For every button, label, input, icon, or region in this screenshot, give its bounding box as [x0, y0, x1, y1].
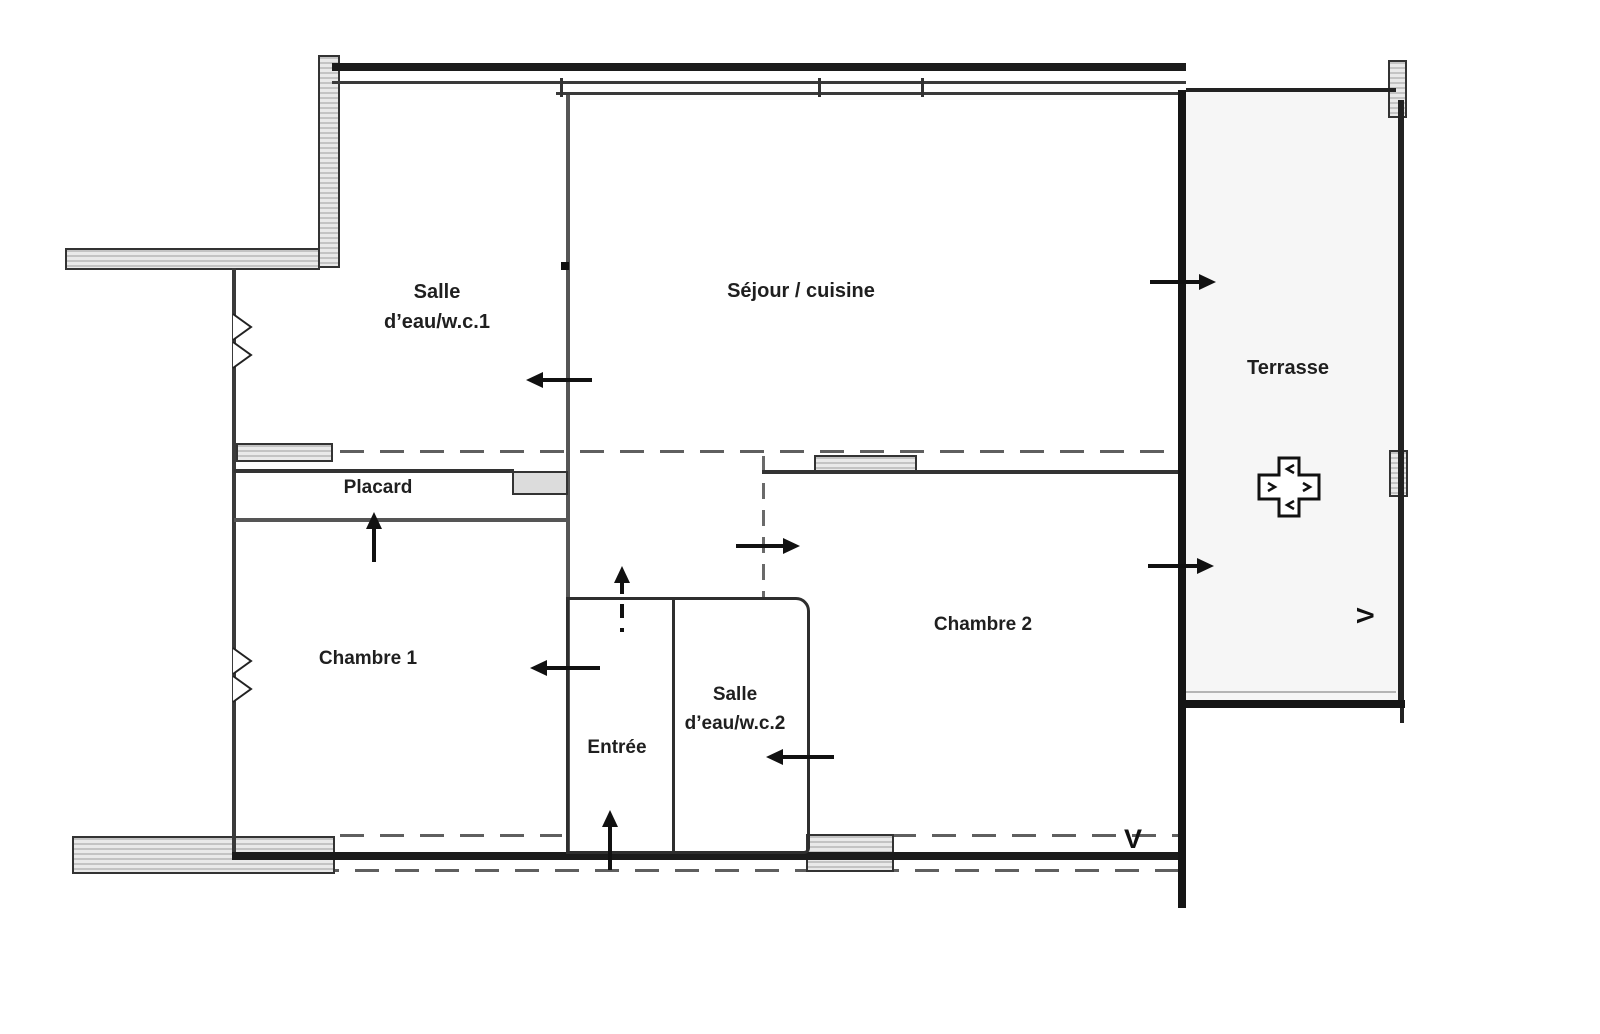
window-mullion-tick-2 — [818, 78, 821, 97]
arrow-head-icon — [783, 538, 800, 554]
room-label-line: Salle — [317, 277, 557, 307]
wall-terrasse-east — [1398, 100, 1404, 708]
arrow-stem — [736, 544, 786, 548]
room-label-chambre-1: Chambre 1 — [268, 644, 468, 673]
room-label-sejour-cuisine: Séjour / cuisine — [671, 276, 931, 306]
room-label-terrasse: Terrasse — [1208, 353, 1368, 383]
room-label-line: d’eau/w.c.2 — [645, 709, 825, 738]
door-arrow-main-entrance — [602, 810, 618, 870]
dashed-line-bottom-upper-left — [340, 834, 562, 837]
door-arrow-sejour-to-terrasse — [1150, 274, 1216, 290]
door-arrow-to-salle2 — [766, 749, 834, 765]
dashed-line-chambre2-west — [762, 456, 765, 598]
arrow-stem — [544, 666, 600, 670]
masonry-topleft-horizontal-wall — [65, 248, 320, 270]
wall-placard-bottom — [234, 518, 568, 522]
window-mullion-tick-3 — [921, 78, 924, 97]
masonry-sejour-dash-left — [236, 443, 333, 462]
duct-box — [512, 471, 568, 495]
door-arrow-chambre2-entry — [736, 538, 800, 554]
door-arrow-chambre2-to-terrasse — [1148, 558, 1214, 574]
wall-top-exterior — [332, 63, 1186, 71]
dashed-line-sejour-south — [340, 450, 1178, 453]
wall-corner-tick-southeast — [1400, 708, 1404, 723]
arrow-stem — [1148, 564, 1200, 568]
arrow-stem — [540, 378, 592, 382]
room-label-placard: Placard — [308, 473, 448, 502]
room-label-line: d’eau/w.c.1 — [317, 307, 557, 337]
door-arrow-entree-to-chambre1 — [530, 660, 600, 676]
room-label-salle-eau-2: Salle d’eau/w.c.2 — [645, 680, 825, 738]
masonry-topleft-vertical-wall — [318, 55, 340, 268]
room-label-chambre-2: Chambre 2 — [883, 610, 1083, 639]
wall-terrasse-north — [1186, 88, 1396, 92]
arrow-head-icon — [1197, 558, 1214, 574]
column-cross-icon — [1257, 456, 1321, 518]
arrow-head-icon — [1199, 274, 1216, 290]
wall-terrasse-west — [1178, 90, 1186, 908]
door-arrow-entree-to-sejour — [614, 566, 630, 632]
arrow-stem — [372, 526, 376, 562]
window-chevron-icon — [231, 312, 257, 372]
arrow-stem — [608, 824, 612, 870]
vent-v-icon: V — [1353, 607, 1380, 623]
wall-top-window-line-2 — [556, 92, 1186, 95]
arrow-stem — [620, 580, 624, 632]
door-arrow-sejour-to-salle1 — [526, 372, 592, 388]
line-terrasse-bottom-thin — [1186, 691, 1396, 693]
window-mullion-tick-1 — [560, 78, 563, 97]
vent-v-icon: V — [1124, 826, 1142, 853]
arrow-stem — [1150, 280, 1202, 284]
wall-terrasse-south — [1186, 700, 1405, 708]
wall-chambre2-top — [762, 470, 1181, 474]
room-label-salle-eau-1: Salle d’eau/w.c.1 — [317, 277, 557, 337]
wall-junction-node — [561, 262, 569, 270]
wall-top-window-line-1 — [332, 81, 1186, 84]
door-arrow-placard — [366, 512, 382, 562]
window-chevron-icon — [231, 646, 257, 706]
arrow-stem — [780, 755, 834, 759]
room-label-line: Salle — [645, 680, 825, 709]
floor-plan: V V Salle — [0, 0, 1600, 1034]
